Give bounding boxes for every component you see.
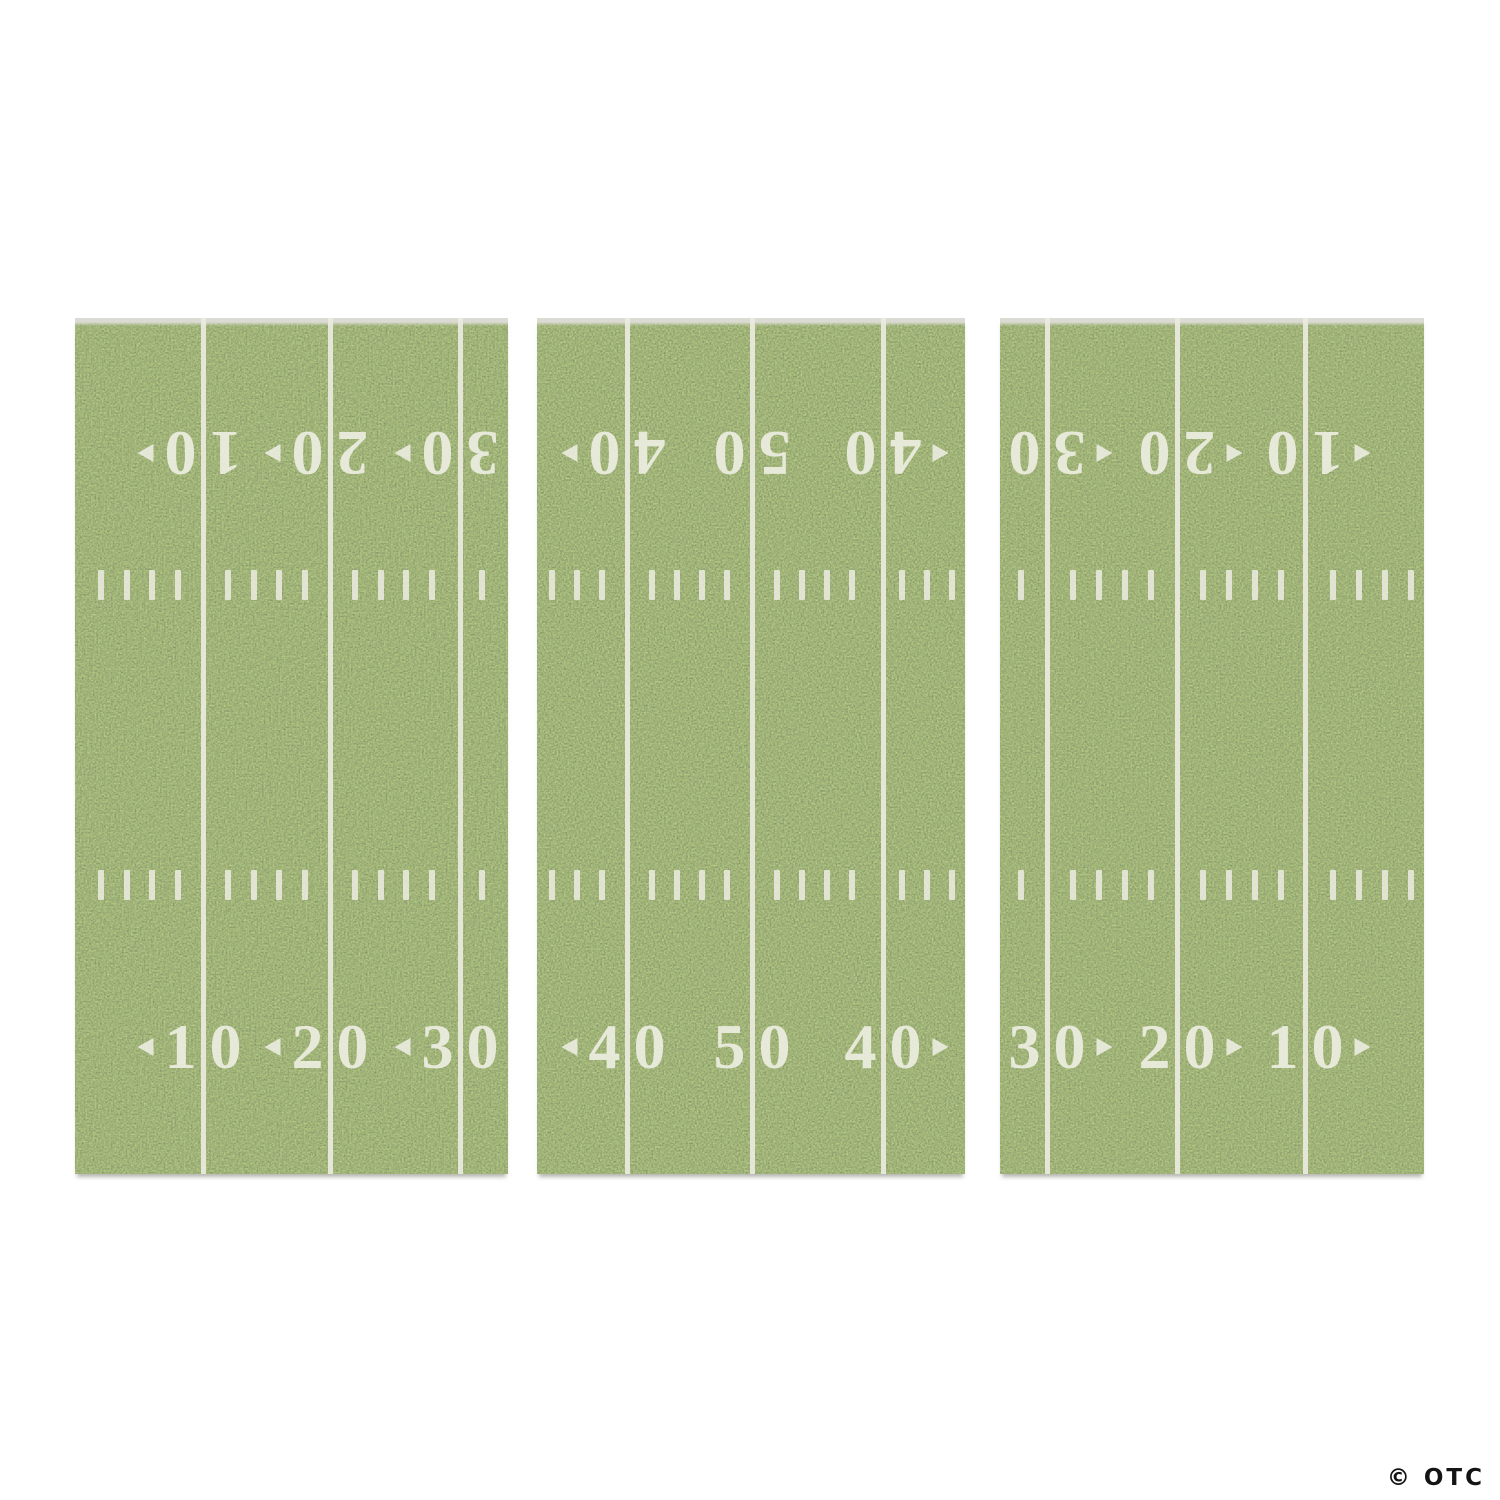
- yard-digit: 0: [1139, 421, 1171, 485]
- yard-digit: 4: [589, 1015, 621, 1079]
- hash-mark: [429, 870, 435, 900]
- hash-mark: [824, 870, 830, 900]
- hash-mark: [1096, 570, 1102, 600]
- hash-mark: [1148, 870, 1154, 900]
- hash-mark: [98, 570, 104, 600]
- direction-arrow-left: [395, 444, 411, 462]
- hash-mark: [378, 870, 384, 900]
- hash-mark: [225, 870, 231, 900]
- yard-digit: 0: [890, 1015, 922, 1079]
- yard-digit: 0: [165, 421, 197, 485]
- yard-digit: 0: [422, 421, 454, 485]
- yard-digit: 3: [1009, 1015, 1041, 1079]
- yard-number-digits: 20: [1139, 421, 1216, 485]
- hash-mark: [724, 570, 730, 600]
- yard-digit: 4: [845, 1015, 877, 1079]
- hash-mark: [674, 870, 680, 900]
- yard-number-top: 30: [422, 425, 499, 481]
- yard-digit: 3: [1054, 421, 1086, 485]
- field-panel-left: 101020203030: [75, 318, 508, 1174]
- yard-digit: 1: [1267, 1015, 1299, 1079]
- direction-arrow-left: [265, 444, 281, 462]
- hash-mark: [1226, 870, 1232, 900]
- field-panel-center: 404050504040: [537, 318, 965, 1174]
- yard-number-top: 20: [1139, 425, 1216, 481]
- hash-mark: [479, 870, 485, 900]
- yard-number-digits: 30: [422, 421, 499, 485]
- hash-mark: [1018, 570, 1024, 600]
- panel-top-edge: [75, 318, 508, 326]
- yard-digit: 0: [845, 421, 877, 485]
- hash-mark: [1122, 570, 1128, 600]
- hash-mark: [251, 570, 257, 600]
- hash-mark: [649, 570, 655, 600]
- hash-mark: [1356, 870, 1362, 900]
- hash-mark: [924, 870, 930, 900]
- hash-mark: [574, 870, 580, 900]
- hash-mark: [124, 870, 130, 900]
- hash-mark: [699, 870, 705, 900]
- hash-mark: [302, 870, 308, 900]
- yard-number-bottom: 40: [589, 1019, 666, 1075]
- yard-digit: 1: [165, 1015, 197, 1079]
- hash-mark: [1278, 570, 1284, 600]
- yard-digit: 0: [589, 421, 621, 485]
- direction-arrow-left: [395, 1038, 411, 1056]
- panel-top-edge: [1000, 318, 1424, 326]
- hash-mark: [149, 570, 155, 600]
- yard-digit: 3: [467, 421, 499, 485]
- direction-arrow-right: [1227, 1038, 1243, 1056]
- hash-mark: [1200, 570, 1206, 600]
- hash-mark: [98, 870, 104, 900]
- hash-mark: [1252, 570, 1258, 600]
- hash-mark: [1278, 870, 1284, 900]
- yard-number-digits: 10: [1267, 421, 1344, 485]
- hash-mark: [1408, 870, 1414, 900]
- hash-mark: [1226, 570, 1232, 600]
- yard-number-bottom: 10: [1267, 1019, 1344, 1075]
- hash-mark: [479, 570, 485, 600]
- yard-number-top: 40: [589, 425, 666, 481]
- direction-arrow-left: [562, 1038, 578, 1056]
- hash-mark: [574, 570, 580, 600]
- yard-number-top: 30: [1009, 425, 1086, 481]
- direction-arrow-left: [265, 1038, 281, 1056]
- hash-mark: [599, 870, 605, 900]
- direction-arrow-right: [1355, 1038, 1371, 1056]
- hash-mark: [1356, 570, 1362, 600]
- direction-arrow-left: [138, 444, 154, 462]
- yard-number-digits: 40: [589, 421, 666, 485]
- hash-mark: [1070, 870, 1076, 900]
- yard-number-bottom: 20: [292, 1019, 369, 1075]
- hash-mark: [699, 570, 705, 600]
- yard-number-bottom: 20: [1139, 1019, 1216, 1075]
- hash-mark: [1330, 570, 1336, 600]
- yard-number-bottom: 30: [422, 1019, 499, 1075]
- hash-mark: [352, 870, 358, 900]
- yard-number-digits: 10: [165, 1015, 242, 1079]
- yard-digit: 0: [759, 1015, 791, 1079]
- product-image: 101020203030404050504040303020201010 © O…: [0, 0, 1500, 1500]
- direction-arrow-right: [1097, 1038, 1113, 1056]
- hash-mark: [899, 870, 905, 900]
- yard-number-digits: 40: [845, 421, 922, 485]
- hash-mark: [649, 870, 655, 900]
- yard-digit: 0: [714, 421, 746, 485]
- direction-arrow-right: [933, 444, 949, 462]
- yard-number-digits: 50: [714, 1015, 791, 1079]
- hash-mark: [1200, 870, 1206, 900]
- yard-digit: 4: [634, 421, 666, 485]
- yard-number-digits: 30: [1009, 1015, 1086, 1079]
- hash-mark: [276, 570, 282, 600]
- yard-number-bottom: 40: [845, 1019, 922, 1075]
- hash-mark: [849, 570, 855, 600]
- hash-mark: [949, 870, 955, 900]
- hash-mark: [378, 570, 384, 600]
- hash-mark: [1096, 870, 1102, 900]
- direction-arrow-right: [1227, 444, 1243, 462]
- hash-mark: [949, 570, 955, 600]
- hash-mark: [674, 570, 680, 600]
- yard-digit: 0: [634, 1015, 666, 1079]
- yard-digit: 0: [292, 421, 324, 485]
- field-panel-right: 303020201010: [1000, 318, 1424, 1174]
- yard-digit: 1: [1312, 421, 1344, 485]
- yard-digit: 2: [337, 421, 369, 485]
- hash-mark: [124, 570, 130, 600]
- yard-digit: 2: [1184, 421, 1216, 485]
- hash-mark: [403, 870, 409, 900]
- yard-digit: 0: [1009, 421, 1041, 485]
- hash-mark: [1382, 570, 1388, 600]
- yard-number-digits: 20: [292, 1015, 369, 1079]
- yard-digit: 4: [890, 421, 922, 485]
- hash-mark: [225, 570, 231, 600]
- yard-number-digits: 30: [1009, 421, 1086, 485]
- yard-number-bottom: 50: [714, 1019, 791, 1075]
- hash-mark: [824, 570, 830, 600]
- hash-mark: [1018, 870, 1024, 900]
- yard-number-digits: 10: [1267, 1015, 1344, 1079]
- yard-digit: 2: [1139, 1015, 1171, 1079]
- direction-arrow-right: [1097, 444, 1113, 462]
- yard-digit: 2: [292, 1015, 324, 1079]
- hash-mark: [599, 570, 605, 600]
- yard-number-digits: 10: [165, 421, 242, 485]
- hash-mark: [149, 870, 155, 900]
- hash-mark: [799, 870, 805, 900]
- hash-mark: [276, 870, 282, 900]
- direction-arrow-left: [562, 444, 578, 462]
- hash-mark: [1148, 570, 1154, 600]
- direction-arrow-left: [138, 1038, 154, 1056]
- hash-mark: [549, 870, 555, 900]
- yard-number-digits: 40: [845, 1015, 922, 1079]
- yard-digit: 3: [422, 1015, 454, 1079]
- yard-number-digits: 50: [714, 421, 791, 485]
- hash-mark: [403, 570, 409, 600]
- yard-number-bottom: 10: [165, 1019, 242, 1075]
- hash-mark: [1252, 870, 1258, 900]
- yard-digit: 0: [467, 1015, 499, 1079]
- yard-number-digits: 40: [589, 1015, 666, 1079]
- hash-mark: [352, 570, 358, 600]
- hash-mark: [175, 870, 181, 900]
- yard-digit: 0: [1267, 421, 1299, 485]
- yard-number-top: 10: [1267, 425, 1344, 481]
- yard-number-digits: 20: [292, 421, 369, 485]
- yard-digit: 1: [210, 421, 242, 485]
- otc-watermark: © OTC: [1387, 1465, 1485, 1491]
- yard-number-digits: 20: [1139, 1015, 1216, 1079]
- hash-mark: [429, 570, 435, 600]
- hash-mark: [899, 570, 905, 600]
- direction-arrow-right: [1355, 444, 1371, 462]
- yard-digit: 0: [1312, 1015, 1344, 1079]
- yard-digit: 0: [1184, 1015, 1216, 1079]
- hash-mark: [774, 870, 780, 900]
- yard-number-top: 10: [165, 425, 242, 481]
- yard-number-top: 20: [292, 425, 369, 481]
- hash-mark: [1408, 570, 1414, 600]
- yard-number-bottom: 30: [1009, 1019, 1086, 1075]
- hash-mark: [549, 570, 555, 600]
- hash-mark: [1382, 870, 1388, 900]
- yard-number-top: 40: [845, 425, 922, 481]
- yard-digit: 5: [759, 421, 791, 485]
- hash-mark: [1330, 870, 1336, 900]
- hash-mark: [924, 570, 930, 600]
- yard-digit: 0: [337, 1015, 369, 1079]
- hash-mark: [175, 570, 181, 600]
- hash-mark: [302, 570, 308, 600]
- hash-mark: [251, 870, 257, 900]
- yard-digit: 0: [1054, 1015, 1086, 1079]
- yard-digit: 5: [714, 1015, 746, 1079]
- hash-mark: [774, 570, 780, 600]
- hash-mark: [1122, 870, 1128, 900]
- hash-mark: [1070, 570, 1076, 600]
- direction-arrow-right: [933, 1038, 949, 1056]
- yard-digit: 0: [210, 1015, 242, 1079]
- yard-number-top: 50: [714, 425, 791, 481]
- hash-mark: [849, 870, 855, 900]
- yard-number-digits: 30: [422, 1015, 499, 1079]
- hash-mark: [724, 870, 730, 900]
- hash-mark: [799, 570, 805, 600]
